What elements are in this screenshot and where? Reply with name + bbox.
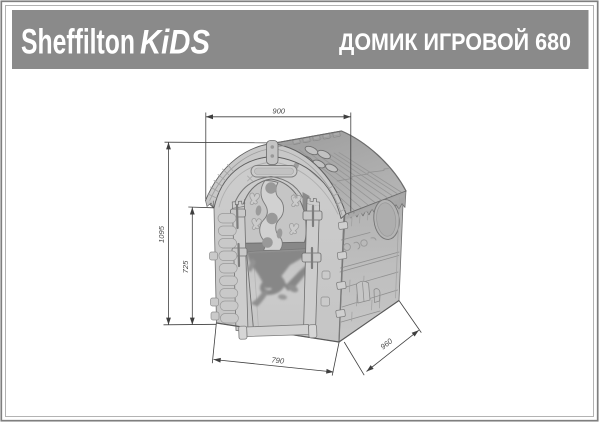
svg-text:725: 725 <box>181 260 190 273</box>
svg-text:KiDS: KiDS <box>140 24 210 62</box>
svg-text:Sheffilton: Sheffilton <box>21 22 135 62</box>
svg-text:1095: 1095 <box>157 225 166 243</box>
svg-text:ДОМИК ИГРОВОЙ 680: ДОМИК ИГРОВОЙ 680 <box>339 28 571 56</box>
svg-text:960: 960 <box>379 336 395 351</box>
svg-text:790: 790 <box>271 355 285 365</box>
svg-text:900: 900 <box>272 106 285 115</box>
